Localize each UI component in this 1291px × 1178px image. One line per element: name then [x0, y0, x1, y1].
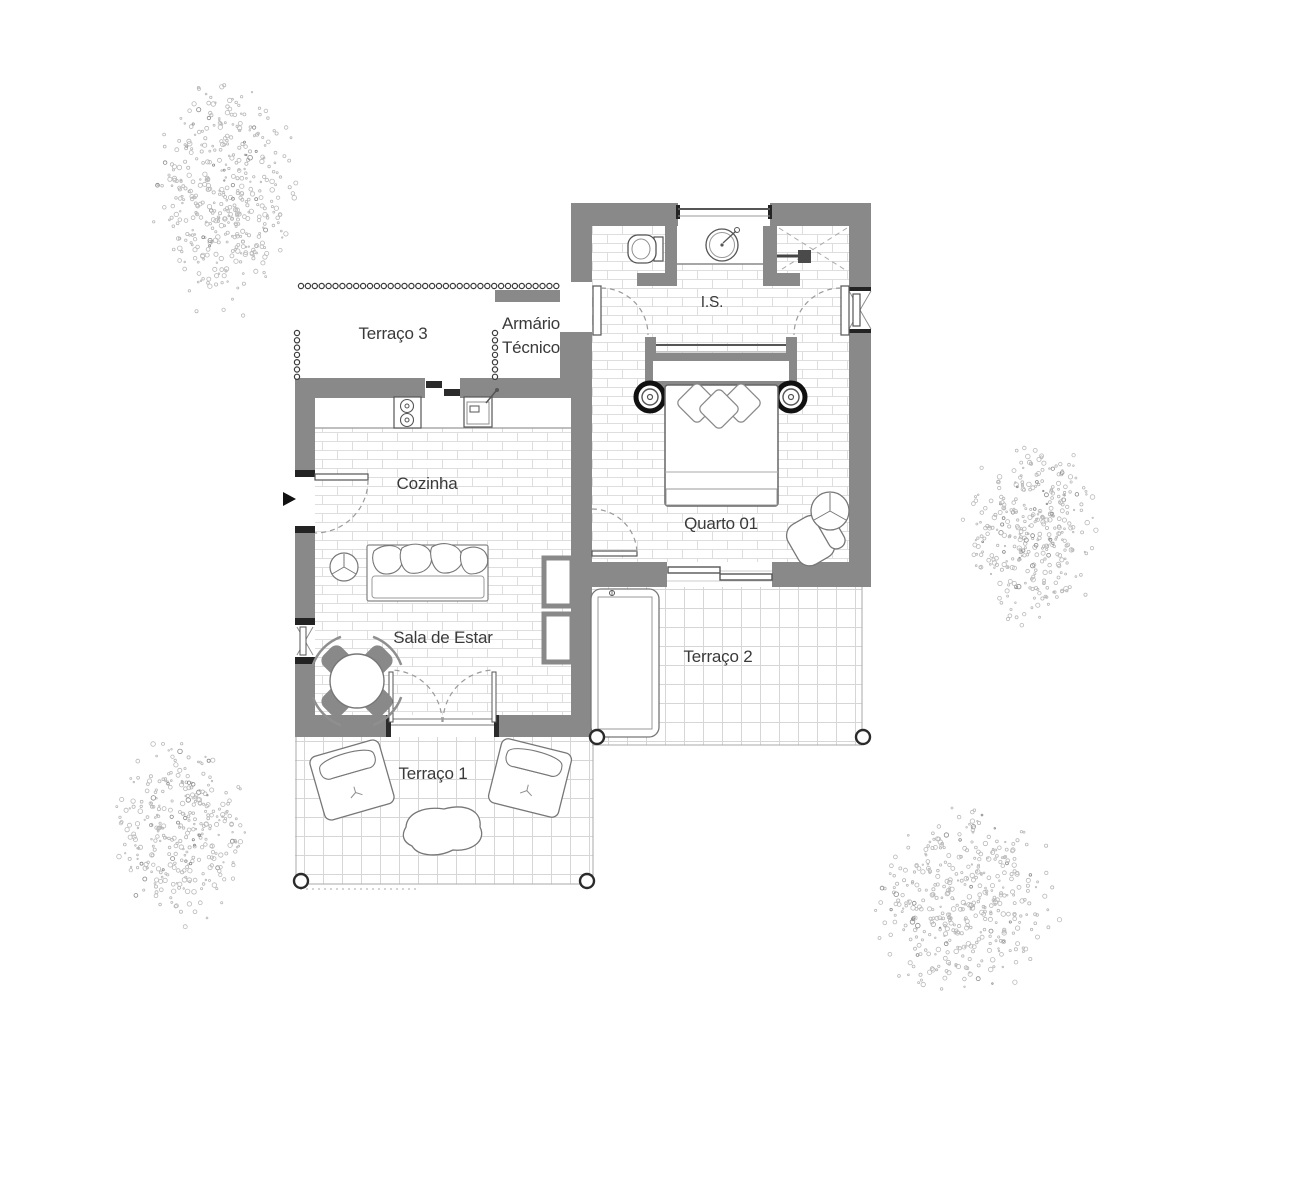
toilet-icon — [628, 235, 663, 263]
living-window — [295, 618, 315, 664]
washbasin-icon — [706, 228, 740, 262]
sliding-door — [667, 567, 772, 581]
floor-plan-svg: Terraço 3 Armário Técnico I.S. Cozinha Q… — [0, 0, 1291, 1178]
bathroom-window — [676, 205, 772, 219]
bedroom-side-table-icon — [811, 492, 849, 530]
tree-icon — [961, 446, 1098, 627]
wall-niche-upper — [544, 558, 572, 606]
room-label-cozinha: Cozinha — [397, 474, 459, 493]
tree-icon — [875, 807, 1062, 990]
tree-icon — [116, 742, 246, 929]
entrance-arrow-icon — [283, 492, 296, 506]
side-window — [849, 287, 871, 333]
plant-icon — [330, 553, 358, 581]
dining-table-icon — [330, 654, 384, 708]
room-label-is: I.S. — [701, 294, 723, 311]
room-label-armario-2: Técnico — [502, 338, 560, 357]
kitchen-counter — [315, 398, 571, 428]
double-bed-icon — [665, 382, 778, 506]
bedside-table-icon — [636, 383, 664, 411]
lounger-icon — [591, 589, 659, 737]
corner-post — [590, 730, 604, 744]
corner-post — [294, 874, 308, 888]
room-label-sala: Sala de Estar — [393, 628, 493, 647]
room-label-terraco1: Terraço 1 — [398, 764, 467, 783]
tree-icon — [153, 84, 298, 318]
corner-post — [580, 874, 594, 888]
kitchen-terrace-door — [426, 381, 460, 396]
room-label-terraco3: Terraço 3 — [358, 324, 427, 343]
corner-post — [856, 730, 870, 744]
stove-icon — [394, 397, 421, 428]
room-label-quarto01: Quarto 01 — [684, 514, 758, 533]
bedside-table-icon — [777, 383, 805, 411]
room-label-armario-1: Armário — [502, 314, 560, 333]
wall-niche-lower — [544, 614, 572, 662]
stone-table-icon — [403, 807, 481, 855]
sofa-icon — [367, 544, 488, 601]
room-label-terraco2: Terraço 2 — [683, 647, 752, 666]
floor-plan-canvas: Terraço 3 Armário Técnico I.S. Cozinha Q… — [0, 0, 1291, 1178]
